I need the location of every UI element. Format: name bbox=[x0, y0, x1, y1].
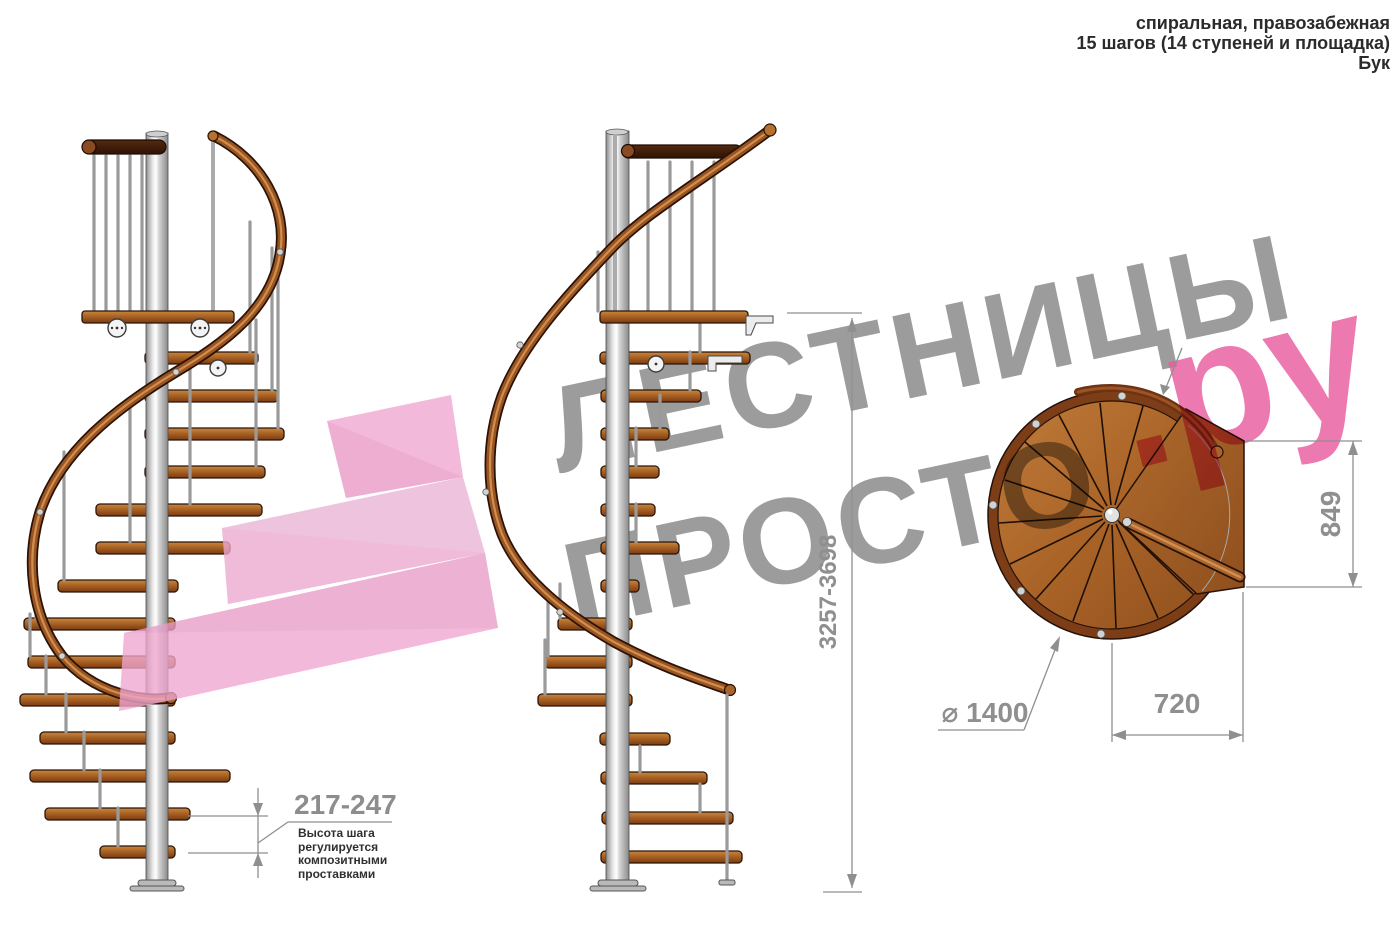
note-step-height: Высота шага регулируется композитными пр… bbox=[298, 827, 428, 881]
title-material: Бук bbox=[1077, 53, 1390, 73]
dimension-total-height-label: 3257-3698 bbox=[815, 535, 842, 650]
title-block: спиральная, правозабежная 15 шагов (14 с… bbox=[1077, 13, 1390, 73]
dimension-step-height-label: 217-247 bbox=[294, 789, 397, 820]
title-steps: 15 шагов (14 ступеней и площадка) bbox=[1077, 33, 1390, 53]
dimension-platform-depth-label: 849 bbox=[1315, 491, 1346, 538]
dimension-total-height: 3257-3698 bbox=[787, 313, 862, 892]
dimension-platform-width: 720 bbox=[1112, 592, 1243, 742]
dimension-diameter: ⌀ 1400 bbox=[938, 636, 1060, 730]
dimensions-layer: 3257-3698 849 720 ⌀ 1400 217-247 bbox=[0, 0, 1400, 943]
dimension-platform-depth: 849 bbox=[1246, 441, 1362, 587]
dimension-diameter-label: ⌀ 1400 bbox=[942, 697, 1029, 728]
title-type: спиральная, правозабежная bbox=[1077, 13, 1390, 33]
dimension-platform-width-label: 720 bbox=[1154, 688, 1201, 719]
